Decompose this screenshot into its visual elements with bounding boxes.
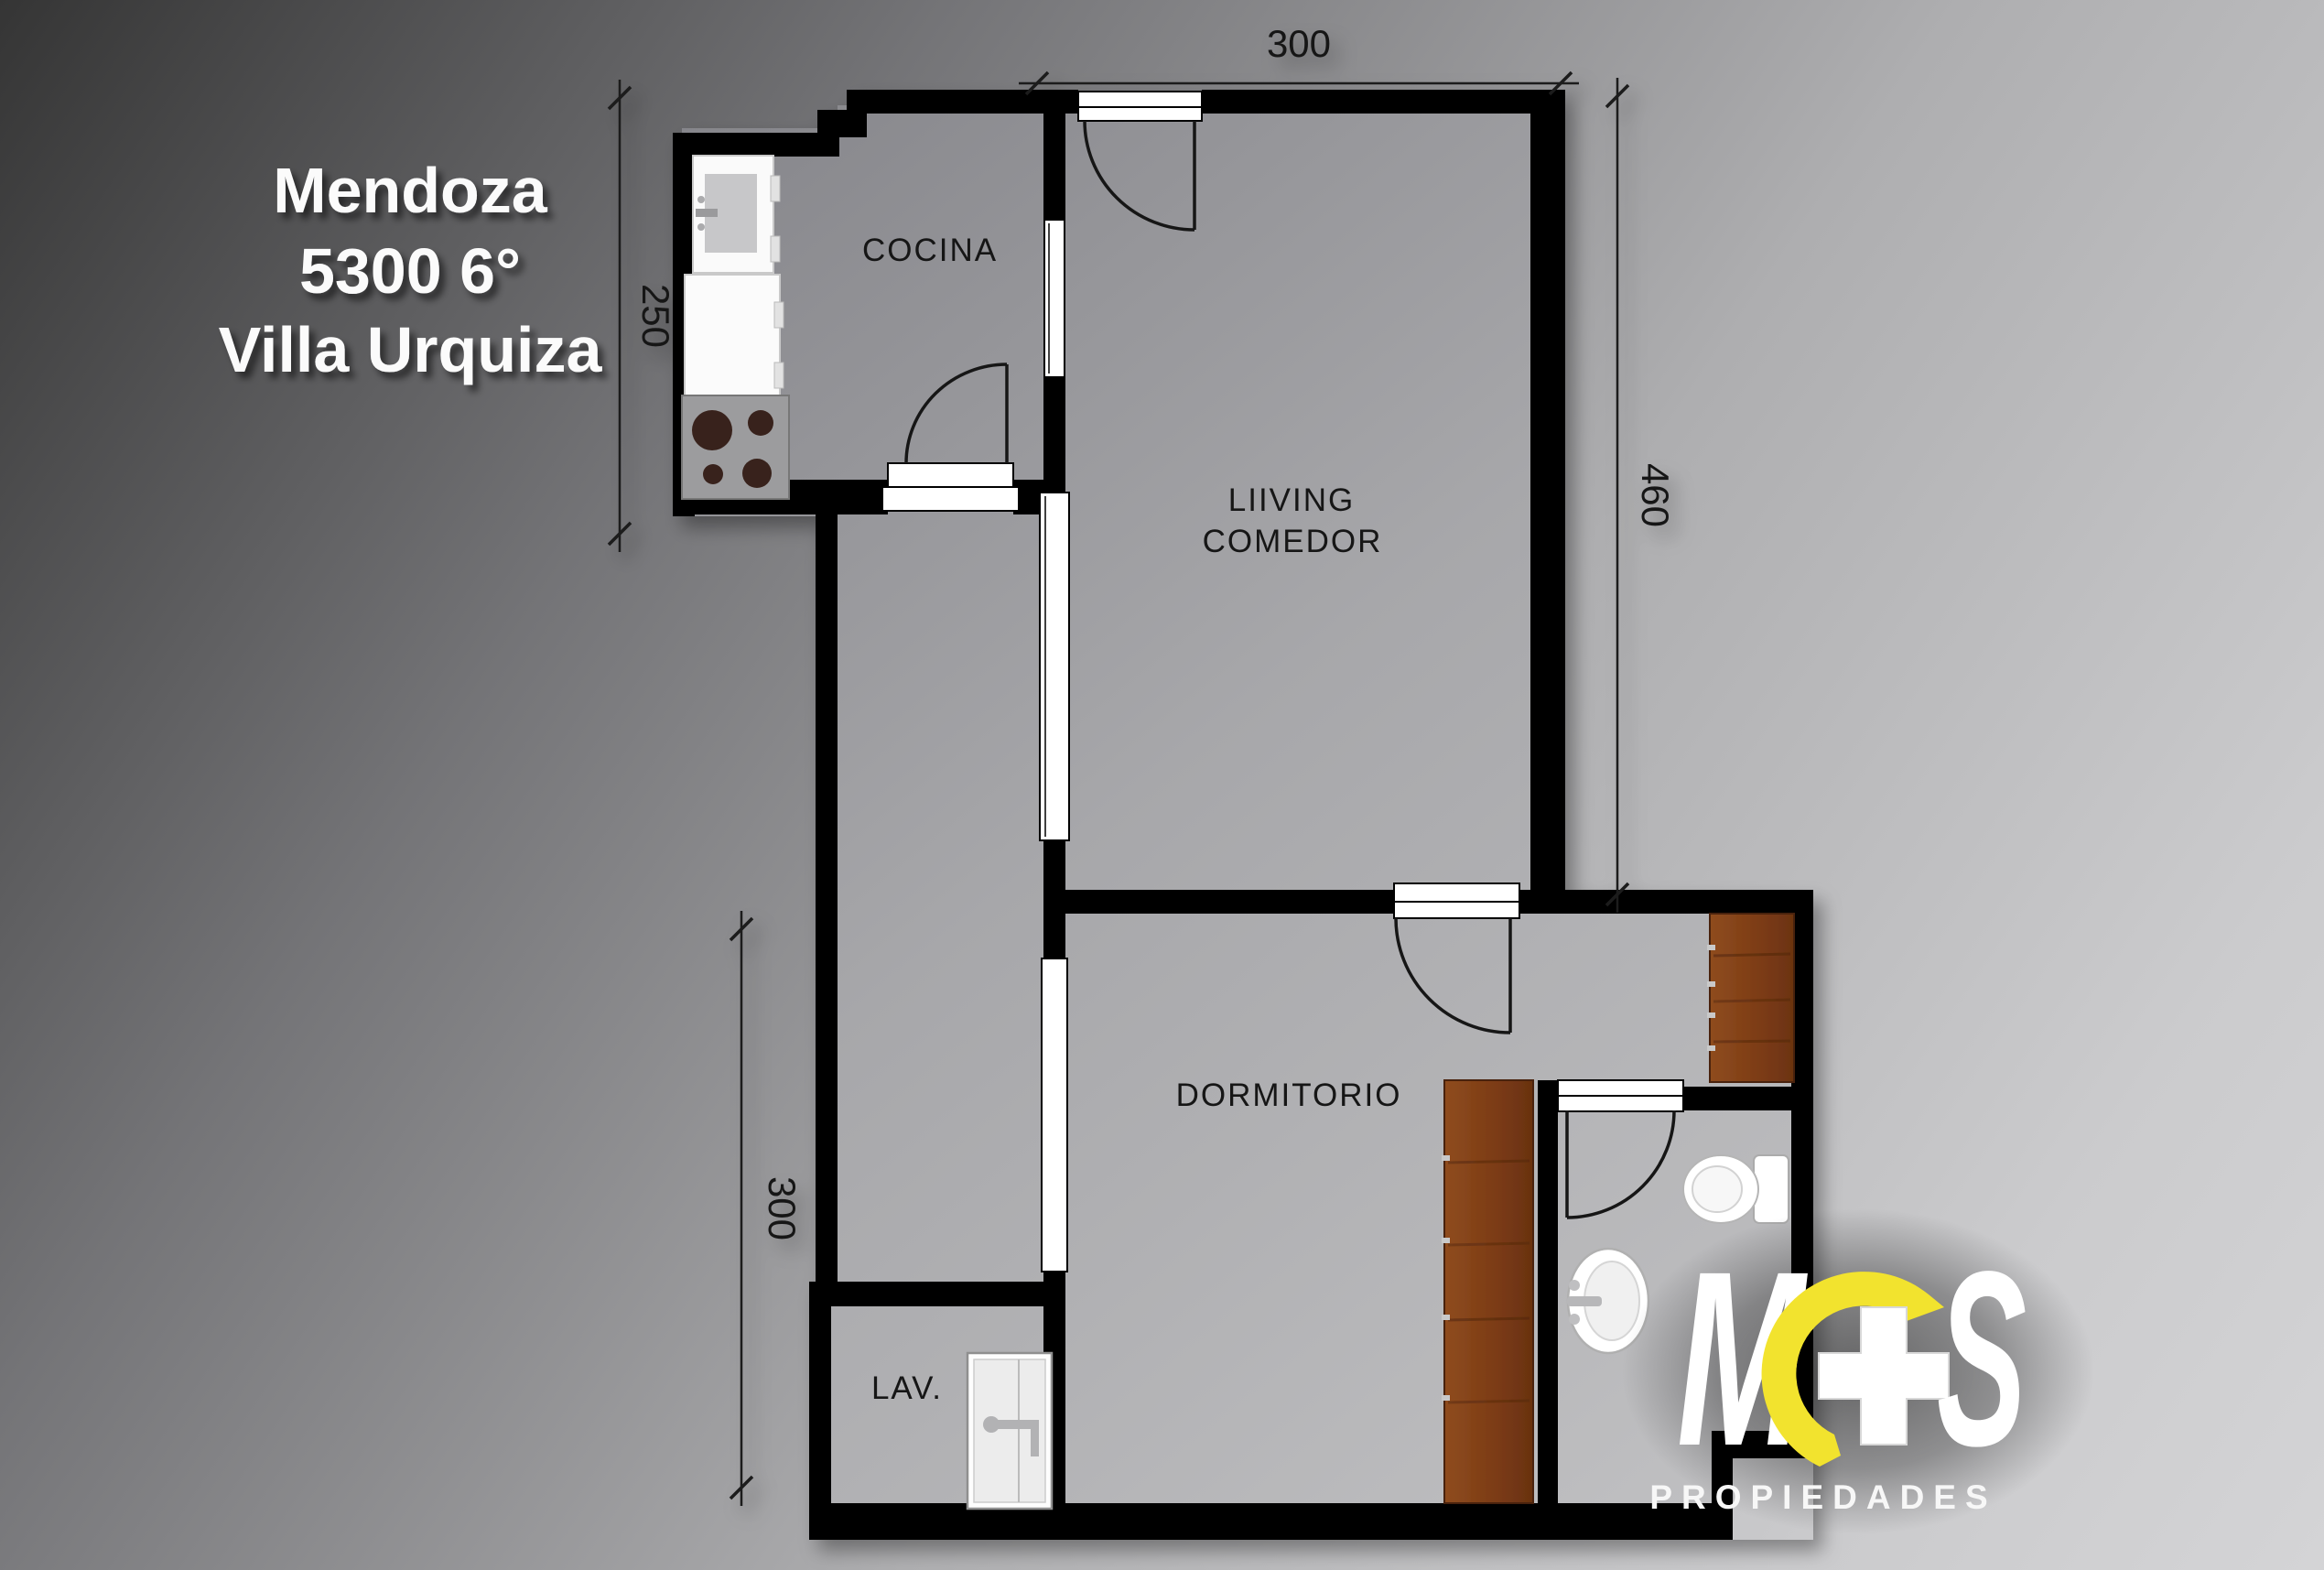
- wall-living-bedroom-left: [1064, 890, 1394, 914]
- entrance-door-sill: [1078, 92, 1202, 107]
- bedroom-door-sill: [1394, 883, 1519, 902]
- kitchen-fixtures: [682, 156, 789, 499]
- wall-living-right: [1530, 90, 1565, 914]
- wall-living-bedroom-right: [1519, 890, 1813, 914]
- wall-hall-left: [816, 513, 838, 1286]
- wall-laundry-top: [809, 1282, 1065, 1306]
- bedroom-door-sill-2: [1394, 902, 1519, 918]
- dimension-left-kitchen: 250: [634, 284, 677, 348]
- kitchen-counter: [685, 275, 780, 395]
- wall-top-right: [1202, 90, 1565, 114]
- fridge-handle: [696, 209, 718, 217]
- kitchen-door-sill: [888, 463, 1013, 487]
- title-line-2: 5300 6°: [299, 235, 521, 307]
- wall-divider-3: [1043, 839, 1065, 960]
- wardrobe-handle: [1442, 1155, 1450, 1161]
- sink-tap-knob: [1569, 1280, 1580, 1291]
- wall-bathroom-left: [1538, 1080, 1558, 1503]
- room-label-living-2: COMEDOR: [1203, 524, 1383, 559]
- floor-plan-page: Mendoza 5300 6° Villa Urquiza: [0, 0, 2324, 1570]
- hall-living-opening: [1040, 493, 1069, 840]
- sink-faucet: [1567, 1296, 1602, 1306]
- sink-tap-knob-2: [1569, 1314, 1580, 1325]
- wardrobe-handle: [1707, 1012, 1715, 1018]
- wardrobe-handle: [1442, 1238, 1450, 1243]
- burner-medium-2: [742, 459, 772, 488]
- hinge-tab-2: [771, 236, 780, 262]
- logo-subtitle: PROPIEDADES: [1649, 1478, 1996, 1516]
- bathroom-door-sill-2: [1558, 1096, 1683, 1111]
- title-line-1: Mendoza: [273, 155, 548, 226]
- cooktop-icon: [682, 395, 789, 499]
- room-label-living-1: LIIVING: [1228, 482, 1355, 518]
- room-label-bedroom: DORMITORIO: [1176, 1077, 1402, 1113]
- wardrobe-bedroom: [1442, 1080, 1533, 1503]
- hinge-tab-4: [774, 363, 784, 388]
- burner-small: [703, 464, 723, 484]
- bathroom-door-sill: [1558, 1080, 1683, 1096]
- dimension-right: 460: [1634, 463, 1677, 527]
- room-label-laundry: LAV.: [871, 1370, 943, 1406]
- laundry-fixtures: [967, 1353, 1052, 1509]
- wall-kitchen-top: [673, 133, 839, 157]
- wardrobe-handle: [1442, 1395, 1450, 1401]
- burner-medium: [748, 410, 773, 436]
- wall-bottom: [809, 1503, 1733, 1540]
- kitchen-pass-window: [1044, 220, 1065, 377]
- floor-plan-canvas: Mendoza 5300 6° Villa Urquiza: [0, 0, 2324, 1570]
- laundry-faucet: [991, 1420, 1037, 1429]
- agency-logo: M S PROPIEDADES: [1622, 1208, 2094, 1534]
- wardrobe-top-right: [1707, 914, 1794, 1082]
- toilet-bowl: [1692, 1166, 1742, 1212]
- wall-laundry-left: [809, 1282, 831, 1540]
- hinge-tab: [771, 176, 780, 201]
- room-label-kitchen: COCINA: [862, 233, 998, 268]
- wall-divider-1: [1043, 110, 1065, 222]
- wall-divider-2: [1043, 376, 1065, 494]
- kitchen-door-sill-2: [882, 487, 1019, 511]
- wardrobe-handle: [1707, 945, 1715, 950]
- room-floor-kitchen: [838, 105, 1066, 516]
- hinge-tab-3: [774, 302, 784, 328]
- fridge-knob: [697, 196, 705, 203]
- burner-large: [692, 410, 732, 450]
- dimension-left-lower: 300: [761, 1176, 804, 1240]
- title-line-3: Villa Urquiza: [219, 314, 603, 385]
- wardrobe-handle: [1707, 981, 1715, 987]
- hall-bedroom-opening: [1042, 958, 1067, 1272]
- wardrobe-handle: [1442, 1315, 1450, 1320]
- laundry-faucet-spout: [1031, 1420, 1039, 1456]
- wardrobe-handle: [1707, 1045, 1715, 1051]
- dimension-top: 300: [1267, 22, 1331, 65]
- logo-letter-s: S: [1937, 1219, 2027, 1498]
- entrance-door-sill-2: [1078, 107, 1202, 121]
- fridge-knob-2: [697, 223, 705, 231]
- wall-bathroom-top: [1683, 1087, 1791, 1110]
